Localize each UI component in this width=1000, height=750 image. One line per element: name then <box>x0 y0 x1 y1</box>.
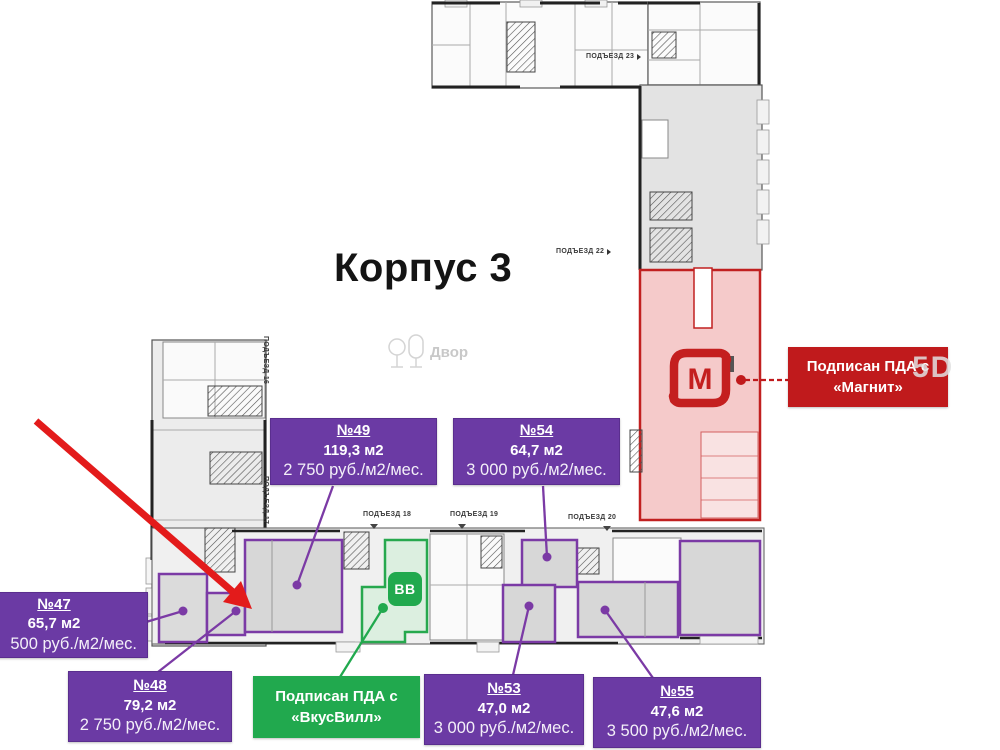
unit-label-48: №48 79,2 м2 2 750 руб./м2/мес. <box>68 671 232 742</box>
building-top-left <box>432 0 648 88</box>
vkusvill-signed-line2: «ВкусВилл» <box>291 707 381 728</box>
unit-49-price: 2 750 руб./м2/мес. <box>283 460 423 481</box>
magnit-signed-line1: Подписан ПДА с <box>807 356 929 377</box>
unit-53-shape <box>503 585 555 642</box>
entrance-label-19-text: ПОДЪЕЗД 19 <box>450 511 498 518</box>
entrance-label-17-text: ПОДЪЕЗД 17 <box>262 476 269 524</box>
entrance-label-16: ПОДЪЕЗД 16 <box>262 336 269 384</box>
entrance-arrow-down-icon <box>370 524 378 529</box>
entrance-arrow-right-icon <box>607 249 611 255</box>
balconies-right <box>757 100 769 244</box>
vkusvill-signed-label: Подписан ПДА с «ВкусВилл» <box>253 676 420 738</box>
unit-label-49: №49 119,3 м2 2 750 руб./м2/мес. <box>270 418 437 485</box>
unit-47-area: 65,7 м2 <box>28 614 81 634</box>
entrance-arrow-down-icon <box>603 526 611 531</box>
unit-53-price: 3 000 руб./м2/мес. <box>434 718 574 739</box>
page-title: Корпус 3 <box>334 246 512 291</box>
floor-plan-page: М <box>0 0 1000 750</box>
entrance-arrow-right-icon <box>637 54 641 60</box>
unit-55-shape <box>578 582 678 637</box>
unit-53-number: №53 <box>487 679 520 699</box>
entrance-label-18-text: ПОДЪЕЗД 18 <box>363 511 411 518</box>
courtyard-label: Двор <box>430 344 468 361</box>
unit-55-price: 3 500 руб./м2/мес. <box>607 721 747 742</box>
unit-49-number: №49 <box>337 421 370 441</box>
entrance-label-17: ПОДЪЕЗД 17 <box>262 476 269 524</box>
entrance-label-22: ПОДЪЕЗД 22 <box>556 248 611 255</box>
magnit-connector-line <box>736 375 788 385</box>
magnit-signed-line2: «Магнит» <box>833 377 903 398</box>
unit-53-area: 47,0 м2 <box>478 699 531 719</box>
unit-right-shape <box>680 541 760 635</box>
unit-54-area: 64,7 м2 <box>510 441 563 461</box>
entrance-label-23-text: ПОДЪЕЗД 23 <box>586 53 634 60</box>
tree-icons <box>389 335 423 367</box>
vkusvill-icon: ВВ <box>388 572 422 606</box>
watermark-text: 5D <box>912 351 954 385</box>
unit-48-number: №48 <box>133 676 166 696</box>
unit-47-price: 500 руб./м2/мес. <box>10 634 147 655</box>
unit-55-area: 47,6 м2 <box>651 702 704 722</box>
unit-label-47: №47 65,7 м2 500 руб./м2/мес. <box>0 592 148 658</box>
unit-label-55: №55 47,6 м2 3 500 руб./м2/мес. <box>593 677 761 748</box>
unit-47-number: №47 <box>37 595 70 615</box>
entrance-label-20-text: ПОДЪЕЗД 20 <box>568 514 616 521</box>
unit-54-number: №54 <box>520 421 553 441</box>
entrance-arrow-down-icon <box>458 524 466 529</box>
unit-label-54: №54 64,7 м2 3 000 руб./м2/мес. <box>453 418 620 485</box>
building-top-right <box>640 2 769 270</box>
unit-label-53: №53 47,0 м2 3 000 руб./м2/мес. <box>424 674 584 745</box>
magnit-logo-letter: М <box>688 363 713 396</box>
unit-55-number: №55 <box>660 682 693 702</box>
entrance-label-23: ПОДЪЕЗД 23 <box>586 53 641 60</box>
unit-54-shape <box>522 540 577 587</box>
entrance-label-22-text: ПОДЪЕЗД 22 <box>556 248 604 255</box>
unit-49-area: 119,3 м2 <box>323 441 383 461</box>
unit-48-price: 2 750 руб./м2/мес. <box>80 715 220 736</box>
unit-54-price: 3 000 руб./м2/мес. <box>466 460 606 481</box>
vkusvill-signed-line1: Подписан ПДА с <box>275 686 397 707</box>
entrance-label-19: ПОДЪЕЗД 19 <box>450 511 498 518</box>
entrance-label-18: ПОДЪЕЗД 18 <box>363 511 411 518</box>
unit-48-area: 79,2 м2 <box>124 696 177 716</box>
entrance-label-20: ПОДЪЕЗД 20 <box>568 514 616 521</box>
entrance-label-16-text: ПОДЪЕЗД 16 <box>262 336 269 384</box>
